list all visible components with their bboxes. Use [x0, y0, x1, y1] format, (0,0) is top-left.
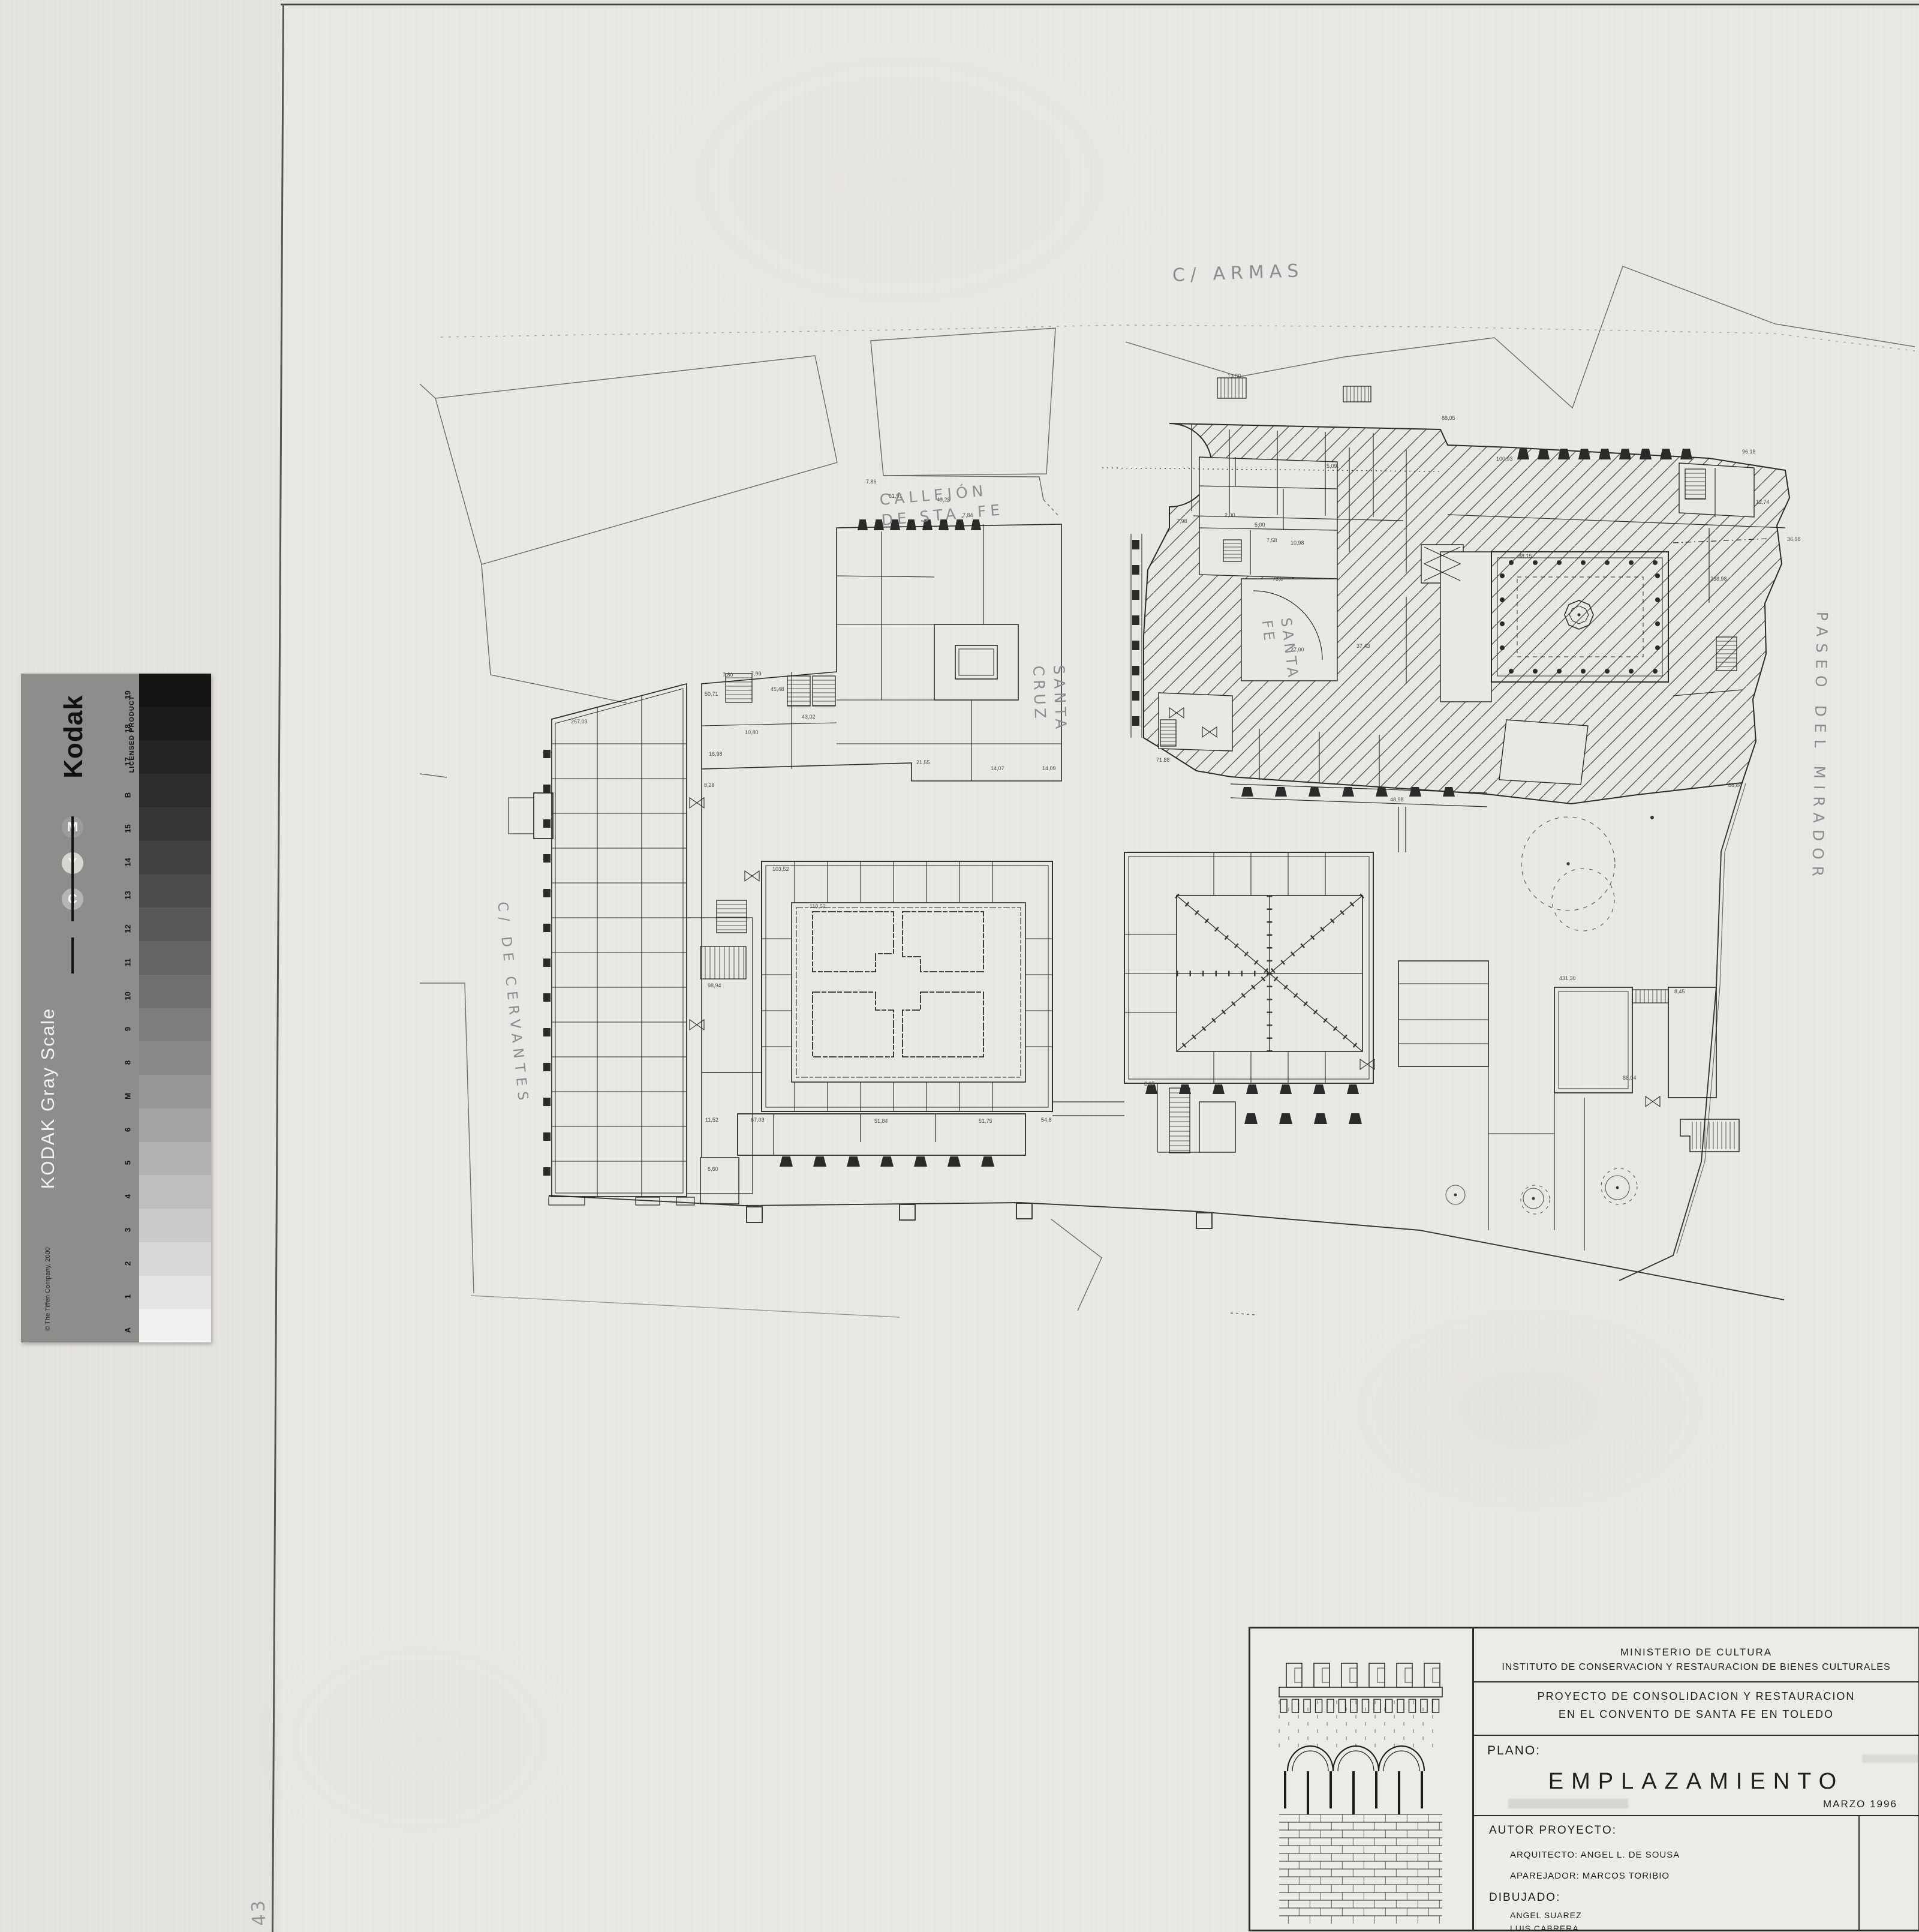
gray-patches-column — [139, 674, 211, 1342]
east-cloister — [1052, 852, 1373, 1152]
gray-patch-14 — [139, 840, 211, 874]
south-wing — [700, 1114, 1025, 1204]
scale-label-A: A — [124, 1318, 133, 1342]
dimension-label: 8,28 — [704, 782, 715, 788]
dimension-label: 14,09 — [1042, 765, 1056, 771]
gray-patch-4 — [139, 1175, 211, 1209]
architect-name: ARQUITECTO: ANGEL L. DE SOUSA — [1510, 1850, 1680, 1860]
strip-rule-upper — [71, 816, 74, 921]
building-label-santa-cruz: SANTA CRUZ — [1028, 665, 1071, 734]
kodak-logo: Kodak — [59, 689, 89, 785]
gray-patch-2 — [139, 1242, 211, 1275]
dimension-label: 48,98 — [1390, 797, 1404, 803]
dimension-label: 71,88 — [1156, 757, 1170, 763]
scale-label-14: 14 — [124, 850, 133, 874]
dimension-label: 431,30 — [1559, 975, 1576, 981]
scale-label-13: 13 — [124, 884, 133, 908]
west-cloister — [702, 769, 1052, 1158]
dimension-label: 5,09 — [1327, 463, 1337, 469]
scale-label-15: 15 — [124, 816, 133, 840]
strip-rule-lower — [71, 938, 74, 973]
gray-scale-title: KODAK Gray Scale — [37, 948, 59, 1248]
boundary-walls — [549, 783, 1784, 1300]
gray-patch-9 — [139, 1008, 211, 1041]
dimension-label: 8,35 — [1144, 1081, 1155, 1087]
scale-label-18: 18 — [124, 716, 133, 740]
gray-patch-11 — [139, 941, 211, 975]
corner-pencil-note: 43 — [246, 1897, 273, 1927]
titleblock-rule-3 — [1474, 1815, 1918, 1816]
dimension-label: 7,98 — [1177, 518, 1187, 524]
scanned-drawing-page: 267,0350,717,807,9945,4843,0210,8016,988… — [0, 0, 1919, 1932]
scale-label-9: 9 — [124, 1017, 133, 1041]
scale-label-3: 3 — [124, 1218, 133, 1242]
building-label-santa-fe: SANTA FE — [1257, 617, 1303, 683]
gray-patch-A — [139, 1309, 211, 1342]
surveyor-name: APAREJADOR: MARCOS TORIBIO — [1510, 1871, 1670, 1881]
dimension-label: 67,03 — [751, 1117, 765, 1123]
dimension-label: 50,71 — [705, 691, 718, 697]
gray-patch-3 — [139, 1209, 211, 1242]
scale-label-10: 10 — [124, 984, 133, 1008]
street-outlines — [420, 266, 1915, 1317]
dimension-label: 45,48 — [771, 686, 784, 692]
dimension-label: 7,58 — [1267, 537, 1277, 543]
dimension-label: 96,18 — [1742, 449, 1756, 455]
scale-label-8: 8 — [124, 1051, 133, 1075]
gray-patch-M — [139, 1075, 211, 1108]
dimension-label: 14,07 — [991, 765, 1004, 771]
dimension-label: 75,6 — [1273, 576, 1283, 582]
street-label-armas: C/ ARMAS — [1172, 259, 1304, 288]
dimension-label: 13,50 — [1228, 373, 1241, 379]
draftsman-name-2: LUIS CABRERA — [1510, 1924, 1579, 1932]
dimension-label: 21,55 — [916, 759, 930, 765]
dimension-label: 7,86 — [866, 479, 877, 485]
plano-label: PLANO: — [1487, 1744, 1541, 1758]
scale-label-1: 1 — [124, 1285, 133, 1309]
scale-label-6: 6 — [124, 1117, 133, 1141]
dimension-label: 10,80 — [745, 729, 759, 735]
dimension-label: 51,84 — [874, 1118, 888, 1124]
scale-label-12: 12 — [124, 917, 133, 941]
dimension-label: 100,93 — [1496, 456, 1513, 462]
institute-name: INSTITUTO DE CONSERVACION Y RESTAURACION… — [1474, 1662, 1918, 1673]
gray-patch-15 — [139, 807, 211, 841]
erased-pencil-smudge-2 — [1862, 1754, 1919, 1763]
dimension-label: 88,15 — [1518, 553, 1532, 559]
gray-patch-6 — [139, 1108, 211, 1141]
draftsman-name-1: ANGEL SUAREZ — [1510, 1910, 1582, 1920]
drawing-date: MARZO 1996 — [1823, 1798, 1897, 1810]
scale-label-17: 17 — [124, 750, 133, 774]
dimension-label: 238,98 — [1710, 576, 1727, 582]
scale-label-M: M — [124, 1084, 133, 1108]
drawn-by-label: DIBUJADO: — [1489, 1891, 1560, 1904]
dimension-label: 43,02 — [802, 714, 816, 720]
gray-patch-19 — [139, 674, 211, 707]
dimension-label: 10,98 — [1291, 540, 1304, 546]
scale-label-2: 2 — [124, 1251, 133, 1275]
dimension-label: 110,52 — [810, 903, 826, 909]
gray-patch-18 — [139, 707, 211, 740]
mudejar-arches-drawing — [1250, 1628, 1472, 1930]
gridded-hall-building — [509, 684, 753, 1205]
gray-patch-17 — [139, 740, 211, 774]
gray-patch-13 — [139, 874, 211, 908]
titleblock-divider-right — [1858, 1815, 1860, 1930]
scale-label-19: 19 — [124, 683, 133, 707]
kodak-gray-scale-strip: Kodak LICENSED PRODUCT M Y C KODAK Gray … — [21, 674, 211, 1342]
drawing-title: EMPLAZAMIENTO — [1474, 1769, 1918, 1795]
ministry-name: MINISTERIO DE CULTURA — [1474, 1646, 1918, 1658]
dimension-label: 11,52 — [705, 1117, 718, 1123]
dimension-label: 7,99 — [751, 671, 762, 677]
gray-patch-12 — [139, 908, 211, 941]
southeast-terraces — [1398, 816, 1739, 1251]
dimension-label: 98,94 — [708, 982, 721, 988]
scale-label-4: 4 — [124, 1185, 133, 1209]
dimension-label: 5,00 — [1255, 522, 1265, 528]
dimension-label: 51,75 — [979, 1118, 992, 1124]
dimension-label: 88,05 — [1442, 415, 1455, 421]
dimension-label: 103,52 — [772, 866, 789, 872]
x-garden-paths — [1177, 896, 1362, 1051]
dimension-label: 54,8 — [1041, 1117, 1052, 1123]
gray-patch-10 — [139, 974, 211, 1008]
gray-patch-1 — [139, 1275, 211, 1309]
dimension-label: 37,43 — [1356, 643, 1370, 649]
scale-label-5: 5 — [124, 1151, 133, 1175]
dimension-label: 88,04 — [1623, 1075, 1637, 1081]
dimension-label: 267,03 — [571, 719, 588, 725]
dimension-label: 88,84 — [1728, 782, 1742, 788]
scale-label-11: 11 — [124, 950, 133, 974]
titleblock-rule-1 — [1474, 1681, 1918, 1682]
erased-pencil-smudge-1 — [1508, 1799, 1628, 1808]
gray-patch-8 — [139, 1041, 211, 1075]
scale-label-B: B — [124, 783, 133, 807]
titleblock-rule-2 — [1474, 1735, 1918, 1736]
dimension-label: 16,98 — [709, 751, 723, 757]
project-title-line2: EN EL CONVENTO DE SANTA FE EN TOLEDO — [1474, 1708, 1918, 1721]
convent-santa-fe-complex — [700, 378, 1789, 1153]
title-block: MINISTERIO DE CULTURA INSTITUTO DE CONSE… — [1249, 1627, 1919, 1931]
tree-symbols — [1446, 816, 1654, 1214]
santa-cruz-rooms-cluster — [702, 519, 1142, 781]
project-title-line1: PROYECTO DE CONSOLIDACION Y RESTAURACION — [1474, 1690, 1918, 1703]
dimension-label: 6,60 — [708, 1166, 718, 1172]
author-section-label: AUTOR PROYECTO: — [1489, 1824, 1617, 1837]
gray-patch-B — [139, 774, 211, 807]
dimension-label: 2,00 — [1225, 512, 1235, 518]
dimension-label: 8,45 — [1674, 988, 1685, 994]
tiffen-copyright: © The Tiffen Company, 2000 — [44, 1223, 52, 1355]
dimension-label: 36,98 — [1787, 536, 1801, 542]
dimension-label: 7,80 — [723, 672, 733, 678]
dimension-label: 12,74 — [1756, 499, 1770, 505]
gray-patch-5 — [139, 1141, 211, 1175]
